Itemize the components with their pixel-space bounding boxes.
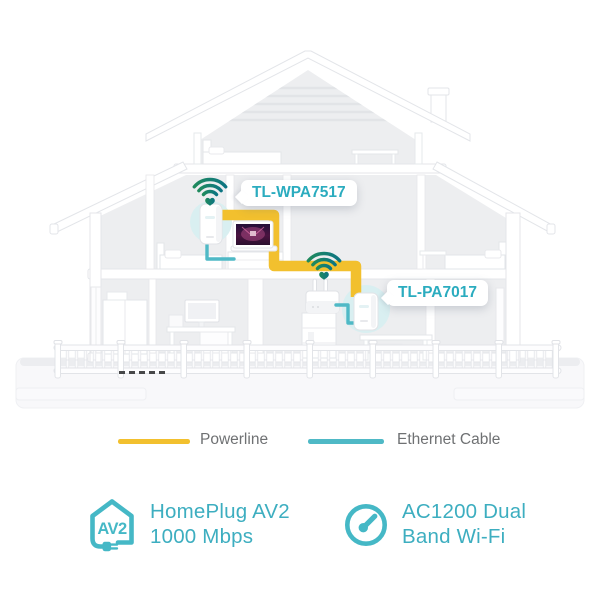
feature-homeplug: HomePlug AV2 1000 Mbps xyxy=(150,500,290,549)
feature-wifi-line2: Band Wi-Fi xyxy=(402,525,526,550)
speedometer-icon xyxy=(343,502,389,548)
ethernet-swatch xyxy=(308,439,384,444)
av2-badge-text: AV2 xyxy=(97,520,127,538)
feature-wifi-line1: AC1200 Dual xyxy=(402,500,526,525)
feature-homeplug-line2: 1000 Mbps xyxy=(150,525,290,550)
page: TL-WPA7517 TL-PA7017 Powerline Ethernet … xyxy=(0,0,600,600)
attic-floor xyxy=(174,164,446,173)
house-illustration xyxy=(0,0,600,425)
laptop xyxy=(231,221,277,251)
legend: Powerline Ethernet Cable xyxy=(0,428,600,460)
device-label-wpa7517: TL-WPA7517 xyxy=(241,180,357,206)
ethernet-label: Ethernet Cable xyxy=(397,431,500,449)
device-label-pa7017: TL-PA7017 xyxy=(387,280,488,306)
attic-wall-left xyxy=(194,133,201,164)
homeplug-av2-icon: AV2 xyxy=(86,497,138,553)
feature-homeplug-line1: HomePlug AV2 xyxy=(150,500,290,525)
powerline-swatch xyxy=(118,439,190,444)
porch-railing xyxy=(54,341,561,379)
feature-wifi: AC1200 Dual Band Wi-Fi xyxy=(402,500,526,549)
powerline-adapter-pa7017 xyxy=(354,293,378,330)
radiator xyxy=(496,288,504,346)
attic-wall-right xyxy=(415,133,422,164)
powerline-extender-wpa7517 xyxy=(200,204,222,244)
powerline-label: Powerline xyxy=(200,431,268,449)
